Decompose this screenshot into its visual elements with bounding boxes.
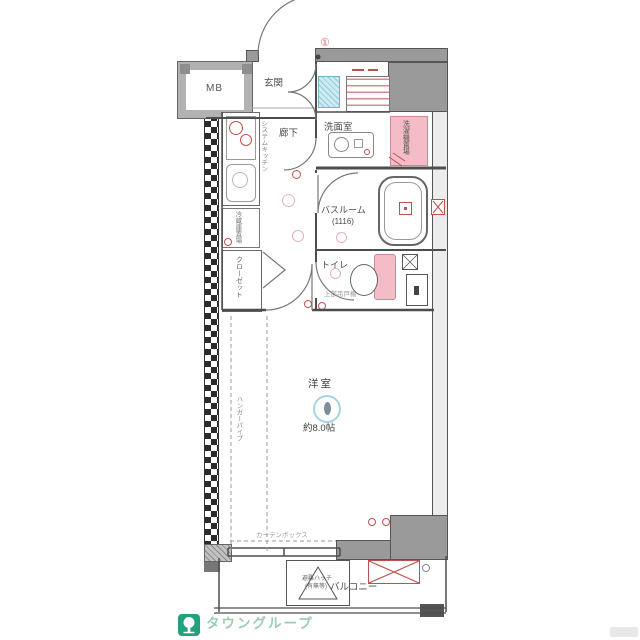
entrance-label: 玄関 <box>264 79 283 89</box>
outlet-3 <box>368 518 376 526</box>
evacuation-hatch-note: (有無等) <box>305 584 327 591</box>
pipe-space-glyph <box>414 286 419 295</box>
mb-label: MB <box>206 83 223 94</box>
bathroom-label: バスルーム <box>321 206 366 216</box>
sink-drain <box>232 172 248 188</box>
refrigerator-label: 冷蔵庫置場 <box>233 211 240 245</box>
closet-label: クローゼット <box>235 256 242 308</box>
entrance-door-arc <box>258 0 318 55</box>
floor-plan: MB 玄関 ① 廊下 システムキッチン 冷蔵庫置場 クローゼット 洗面室 洗濯機… <box>0 0 640 640</box>
evacuation-hatch-label: 避難ハッチ <box>302 576 332 583</box>
outlet-1 <box>304 300 312 308</box>
pipe-space-small <box>402 254 418 270</box>
town-group-logo <box>178 614 200 636</box>
outlet-2 <box>318 302 326 310</box>
hanger-pipe-label: ハンガーパイプ <box>234 396 241 466</box>
balcony-end-block <box>420 604 444 617</box>
hallway-label: 廊下 <box>279 129 298 139</box>
tree-icon <box>178 614 200 636</box>
kitchen-label: システムキッチン <box>259 120 266 210</box>
balcony-bottom <box>214 608 446 613</box>
ceiling-mark-3 <box>330 268 341 279</box>
balcony-label: バルコニー <box>330 583 377 593</box>
top-right-wall-block <box>388 62 448 112</box>
ceiling-light-glyph <box>324 402 331 415</box>
shoe-shelf <box>346 76 390 112</box>
shoe-closet-door-arcs <box>288 64 316 120</box>
watermark-stamp <box>610 627 638 637</box>
window-bottom <box>228 548 340 556</box>
vanity-outlet <box>364 149 370 155</box>
room-size-label: 約8.0帖 <box>303 424 335 434</box>
ac-outdoor-unit-box <box>368 560 420 584</box>
ceiling-mark-2 <box>292 230 304 242</box>
room-label: 洋室 <box>308 379 333 391</box>
bottom-right-wall-block <box>390 515 448 560</box>
upper-shelf-label: 上部吊戸棚 <box>324 291 357 298</box>
curtain-box-label: カーテンボックス <box>254 532 310 539</box>
right-wall <box>432 112 448 560</box>
stove-burner-2 <box>240 134 252 146</box>
closet-bifold-door <box>263 252 285 288</box>
outlet-4 <box>382 518 390 526</box>
ceiling-mark-1 <box>282 194 295 207</box>
stove-burner-1 <box>229 121 243 135</box>
window-end-block <box>204 544 232 562</box>
vanity-cabinet <box>354 139 363 148</box>
left-wall-hatch <box>204 115 219 572</box>
company-name: タウングループ <box>206 617 314 632</box>
top-wall <box>315 48 448 62</box>
top-left-wall-stub <box>246 50 259 62</box>
washroom-door-arc <box>284 138 316 170</box>
washer-label: 洗濯機置場 <box>402 120 409 164</box>
bathroom-size-label: (1116) <box>332 218 354 227</box>
refrigerator-outlet <box>224 238 232 246</box>
mb-corner-right <box>242 64 252 74</box>
outlet-5 <box>292 170 301 179</box>
wall-equipment-marker <box>431 199 445 215</box>
mark-one: ① <box>320 37 330 49</box>
shower-drain <box>336 232 347 243</box>
entrance-storage <box>318 76 340 108</box>
mb-corner-left <box>180 64 190 74</box>
bath-heater-dot <box>404 207 407 210</box>
balcony-drain <box>422 564 430 572</box>
vanity-sink <box>334 137 349 152</box>
